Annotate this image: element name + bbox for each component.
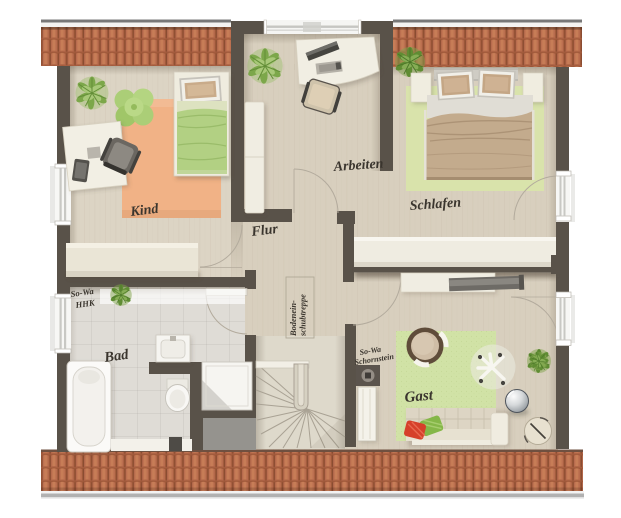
svg-text:Bodenein-: Bodenein- xyxy=(289,300,298,337)
svg-text:schubtreppe: schubtreppe xyxy=(298,294,307,337)
svg-text:Gast: Gast xyxy=(404,388,434,406)
